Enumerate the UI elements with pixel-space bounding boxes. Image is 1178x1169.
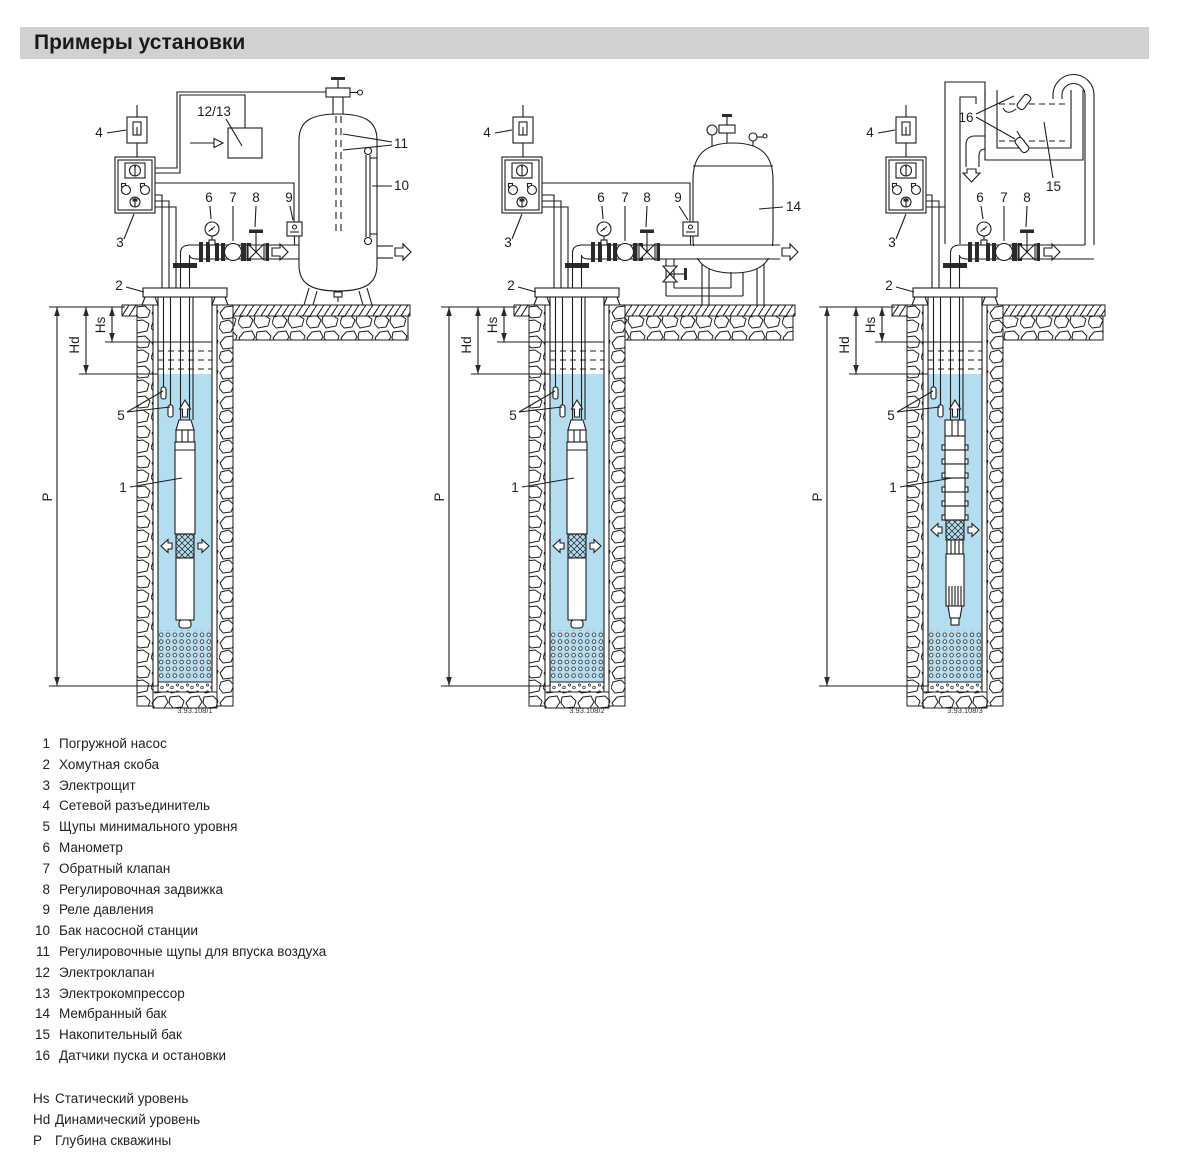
label-4: 4 <box>866 125 874 140</box>
outflow-arrow <box>395 244 411 260</box>
flow-arrow <box>1044 244 1060 260</box>
ground-surface <box>987 305 1105 316</box>
label-8: 8 <box>1023 190 1031 205</box>
label-4: 4 <box>95 125 103 140</box>
legend-item: 4Сетевой разъединитель <box>33 796 326 817</box>
pressure-gauge <box>597 222 611 245</box>
page-title: Примеры установки <box>20 27 1149 55</box>
label-9: 9 <box>285 190 293 205</box>
label-3: 3 <box>504 235 512 250</box>
figure-number: 3.93.108/3 <box>947 706 982 715</box>
legend-item: 1Погружной насос <box>33 734 326 755</box>
legend-item: 10Бак насосной станции <box>33 921 326 942</box>
label-hs: Hs <box>485 317 500 334</box>
disconnect-switch <box>513 105 533 157</box>
page: Примеры установки <box>0 0 1178 1169</box>
storage-tank <box>963 90 1083 182</box>
label-hd: Hd <box>67 336 82 353</box>
control-panel <box>502 157 542 213</box>
surface-piping <box>961 222 1095 262</box>
label-1: 1 <box>119 480 127 495</box>
installation-diagrams: 4 3 12/13 6 7 8 9 2 5 1 11 10 Hs Hd P 3.… <box>0 60 1178 740</box>
level-def: HsСтатический уровень <box>33 1088 200 1109</box>
legend-item: 14Мембранный бак <box>33 1004 326 1025</box>
disconnect-switch <box>896 105 916 157</box>
label-5: 5 <box>117 408 125 423</box>
figure-number: 3.93.108/1 <box>177 706 212 715</box>
legend-item: 9Реле давления <box>33 900 326 921</box>
label-p: P <box>40 492 55 501</box>
label-hd: Hd <box>837 336 852 353</box>
label-7: 7 <box>229 190 237 205</box>
legend-item: 5Щупы минимального уровня <box>33 817 326 838</box>
label-9: 9 <box>674 190 682 205</box>
disconnect-switch <box>127 105 147 157</box>
label-7: 7 <box>1000 190 1008 205</box>
level-def: HdДинамический уровень <box>33 1109 200 1130</box>
label-hs: Hs <box>863 317 878 334</box>
label-1: 1 <box>511 480 519 495</box>
legend-item: 8Регулировочная задвижка <box>33 880 326 901</box>
label-p: P <box>810 492 825 501</box>
ground-surface <box>609 305 795 316</box>
figure-number: 3.93.108/2 <box>569 706 604 715</box>
label-7: 7 <box>621 190 629 205</box>
air-intake-arrow <box>214 139 223 148</box>
legend-item: 16Датчики пуска и остановки <box>33 1046 326 1067</box>
legend-item: 13Электрокомпрессор <box>33 984 326 1005</box>
label-12-13: 12/13 <box>197 104 231 119</box>
legend-item: 2Хомутная скоба <box>33 755 326 776</box>
label-16: 16 <box>958 110 973 125</box>
ground-stones <box>217 316 408 340</box>
level-def: PГлубина скважины <box>33 1130 200 1151</box>
level-definitions: HsСтатический уровень HdДинамический уро… <box>33 1088 200 1151</box>
ground-surface <box>217 305 410 316</box>
legend-item: 11Регулировочные щупы для впуска воздуха <box>33 942 326 963</box>
ground-stones <box>609 316 793 340</box>
ground-stones <box>987 316 1103 340</box>
label-2: 2 <box>115 278 123 293</box>
pressure-gauge <box>205 222 219 245</box>
label-5: 5 <box>509 408 517 423</box>
label-14: 14 <box>786 199 802 214</box>
label-8: 8 <box>643 190 651 205</box>
label-8: 8 <box>252 190 260 205</box>
pressure-gauge <box>977 222 991 245</box>
diagram-1: 4 3 12/13 6 7 8 9 2 5 1 11 10 Hs Hd P 3.… <box>40 77 411 715</box>
label-4: 4 <box>483 125 491 140</box>
label-15: 15 <box>1046 179 1061 194</box>
label-6: 6 <box>976 190 984 205</box>
label-2: 2 <box>885 278 893 293</box>
diagram-2: 4 3 6 7 8 9 2 5 1 14 Hs Hd P 3.93.108/2 <box>432 105 802 715</box>
label-2: 2 <box>507 278 515 293</box>
compressor-box <box>228 128 262 158</box>
label-1: 1 <box>889 480 897 495</box>
legend: 1Погружной насос 2Хомутная скоба 3Электр… <box>33 734 326 1067</box>
label-3: 3 <box>116 235 124 250</box>
wiring <box>926 195 945 288</box>
pressure-tank <box>299 77 377 305</box>
membrane-tank <box>693 114 773 305</box>
outflow-arrow <box>782 244 798 260</box>
label-p: P <box>432 492 447 501</box>
label-3: 3 <box>888 235 896 250</box>
diagram-3: 4 3 6 7 8 16 2 5 1 15 Hs Hd P 3.93.108/3 <box>810 75 1105 716</box>
control-panel <box>115 157 155 213</box>
legend-item: 6Манометр <box>33 838 326 859</box>
control-panel <box>886 157 926 213</box>
label-10: 10 <box>394 178 409 193</box>
label-6: 6 <box>205 190 213 205</box>
legend-item: 7Обратный клапан <box>33 859 326 880</box>
section-title-bar: Примеры установки <box>20 27 1149 59</box>
label-hd: Hd <box>459 336 474 353</box>
legend-item: 3Электрощит <box>33 776 326 797</box>
legend-item: 15Накопительный бак <box>33 1025 326 1046</box>
label-hs: Hs <box>93 317 108 334</box>
label-11: 11 <box>394 136 408 151</box>
outlet-arrow <box>963 169 980 182</box>
label-5: 5 <box>887 408 895 423</box>
label-6: 6 <box>597 190 605 205</box>
legend-item: 12Электроклапан <box>33 963 326 984</box>
